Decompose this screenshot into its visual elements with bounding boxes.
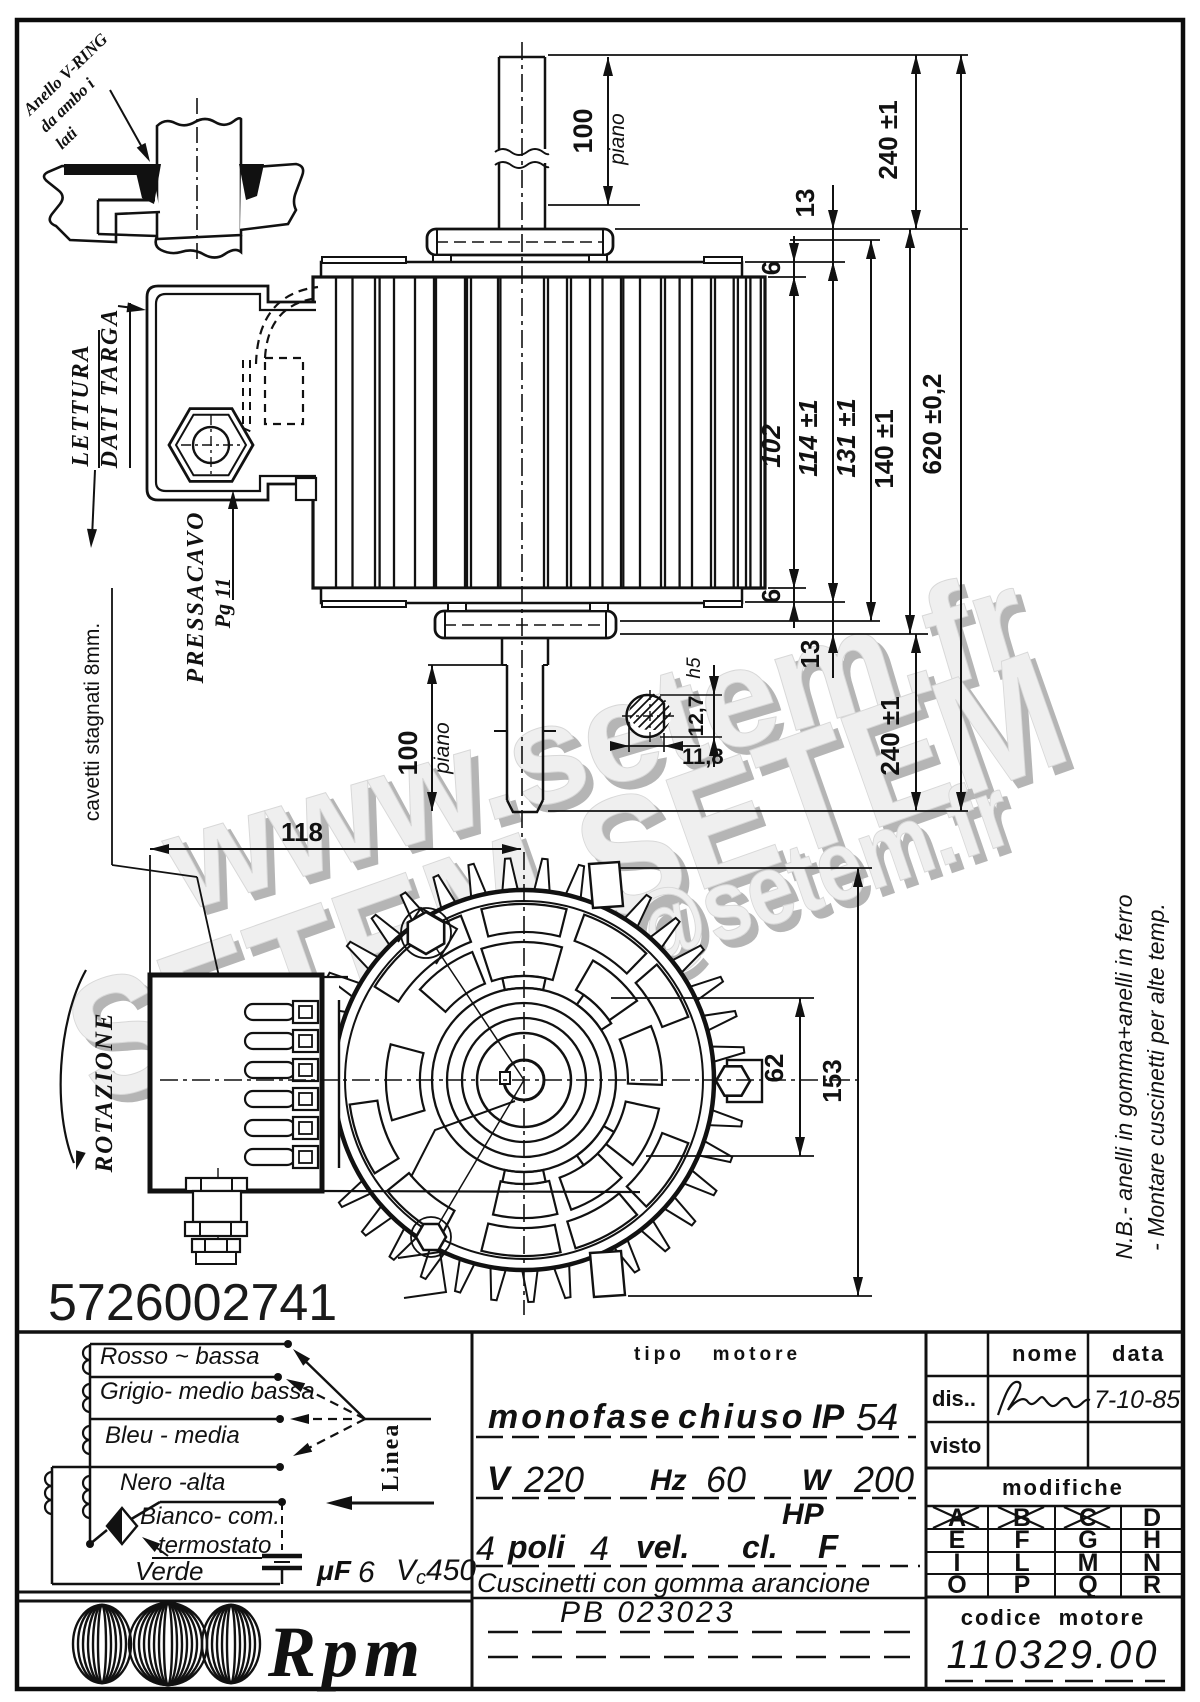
- svg-text:62: 62: [759, 1054, 789, 1083]
- svg-text:modifiche: modifiche: [1002, 1475, 1124, 1500]
- svg-text:cavetti stagnati 8mm.: cavetti stagnati 8mm.: [81, 623, 104, 821]
- svg-text:114 ±1: 114 ±1: [793, 399, 823, 476]
- svg-text:Bleu - media: Bleu - media: [105, 1422, 240, 1449]
- svg-text:V: V: [487, 1460, 513, 1498]
- svg-text:60: 60: [706, 1459, 746, 1500]
- svg-text:Cuscinetti con gomma arancione: Cuscinetti con gomma arancione: [477, 1568, 870, 1598]
- svg-text:F: F: [818, 1528, 839, 1565]
- svg-text:PRESSACAVO: PRESSACAVO: [183, 511, 209, 685]
- svg-text:P: P: [1014, 1571, 1031, 1599]
- svg-text:termostato: termostato: [158, 1532, 271, 1559]
- svg-text:piano: piano: [606, 113, 629, 166]
- svg-text:118: 118: [281, 817, 323, 847]
- svg-text:153: 153: [817, 1059, 847, 1102]
- svg-text:- Montare cuscinetti per alte: - Montare cuscinetti per alte temp.: [1143, 903, 1169, 1251]
- svg-text:54: 54: [856, 1397, 898, 1439]
- svg-text:HP: HP: [782, 1498, 825, 1531]
- svg-text:620 ±0,2: 620 ±0,2: [917, 373, 947, 474]
- svg-text:Rpm: Rpm: [267, 1612, 426, 1692]
- svg-text:piano: piano: [431, 722, 454, 775]
- svg-text:100: 100: [393, 730, 423, 775]
- svg-text:Rosso ~ bassa: Rosso ~ bassa: [100, 1343, 259, 1370]
- svg-text:102: 102: [756, 424, 786, 468]
- svg-text:240 ±1: 240 ±1: [875, 696, 905, 775]
- svg-text:12,7: 12,7: [685, 696, 708, 737]
- svg-text:13: 13: [790, 189, 820, 218]
- svg-text:Verde: Verde: [135, 1556, 203, 1586]
- svg-text:6: 6: [756, 261, 786, 275]
- svg-text:IP: IP: [812, 1398, 844, 1436]
- svg-text:Hz: Hz: [650, 1464, 687, 1497]
- svg-text:Vc450: Vc450: [396, 1554, 476, 1589]
- svg-text:110329.00: 110329.00: [946, 1633, 1159, 1677]
- svg-text:R: R: [1143, 1571, 1161, 1599]
- svg-text:6: 6: [358, 1556, 375, 1589]
- svg-text:140 ±1: 140 ±1: [869, 409, 899, 488]
- svg-text:tipo motore: tipo motore: [634, 1344, 801, 1365]
- svg-text:Pg 11: Pg 11: [210, 578, 235, 630]
- svg-text:Bianco- com.: Bianco- com.: [140, 1503, 280, 1530]
- svg-text:Linea: Linea: [378, 1423, 404, 1492]
- svg-text:chiuso: chiuso: [678, 1398, 806, 1436]
- svg-text:Grigio- medio bassa: Grigio- medio bassa: [100, 1378, 315, 1405]
- svg-text:7-10-85: 7-10-85: [1094, 1386, 1180, 1414]
- svg-text:data: data: [1112, 1341, 1165, 1366]
- svg-text:DATI TARGA: DATI TARGA: [97, 308, 123, 470]
- svg-text:Nero -alta: Nero -alta: [120, 1469, 225, 1496]
- svg-text:nome: nome: [1012, 1341, 1079, 1366]
- svg-text:100: 100: [568, 108, 598, 153]
- svg-text:monofase: monofase: [488, 1398, 673, 1436]
- svg-text:O: O: [947, 1571, 966, 1599]
- svg-text:h5: h5: [684, 657, 705, 679]
- svg-text:visto: visto: [930, 1433, 981, 1458]
- svg-text:vel.: vel.: [636, 1529, 689, 1565]
- svg-text:dis..: dis..: [932, 1386, 976, 1411]
- svg-text:13: 13: [795, 640, 825, 669]
- svg-text:11,8: 11,8: [682, 744, 724, 769]
- svg-text:codice motore: codice motore: [961, 1605, 1145, 1630]
- svg-text:poli: poli: [507, 1529, 566, 1565]
- svg-text:ROTAZIONE: ROTAZIONE: [91, 1011, 118, 1173]
- svg-text:4: 4: [476, 1530, 495, 1568]
- svg-text:Q: Q: [1078, 1571, 1097, 1599]
- svg-text:W: W: [802, 1464, 833, 1497]
- svg-text:5726002741: 5726002741: [48, 1274, 337, 1332]
- svg-text:131 ±1: 131 ±1: [831, 398, 861, 477]
- svg-text:LETTURA: LETTURA: [68, 343, 94, 467]
- svg-text:4: 4: [590, 1530, 609, 1568]
- svg-text:220: 220: [523, 1459, 584, 1500]
- svg-text:N.B.- anelli in gomma+anelli i: N.B.- anelli in gomma+anelli in ferro: [1111, 894, 1137, 1259]
- svg-text:cl.: cl.: [742, 1529, 778, 1565]
- svg-text:240 ±1: 240 ±1: [873, 100, 903, 179]
- svg-text:μF: μF: [316, 1555, 352, 1586]
- svg-text:PB 023023: PB 023023: [560, 1596, 735, 1629]
- svg-text:6: 6: [756, 589, 786, 603]
- svg-text:200: 200: [853, 1459, 914, 1500]
